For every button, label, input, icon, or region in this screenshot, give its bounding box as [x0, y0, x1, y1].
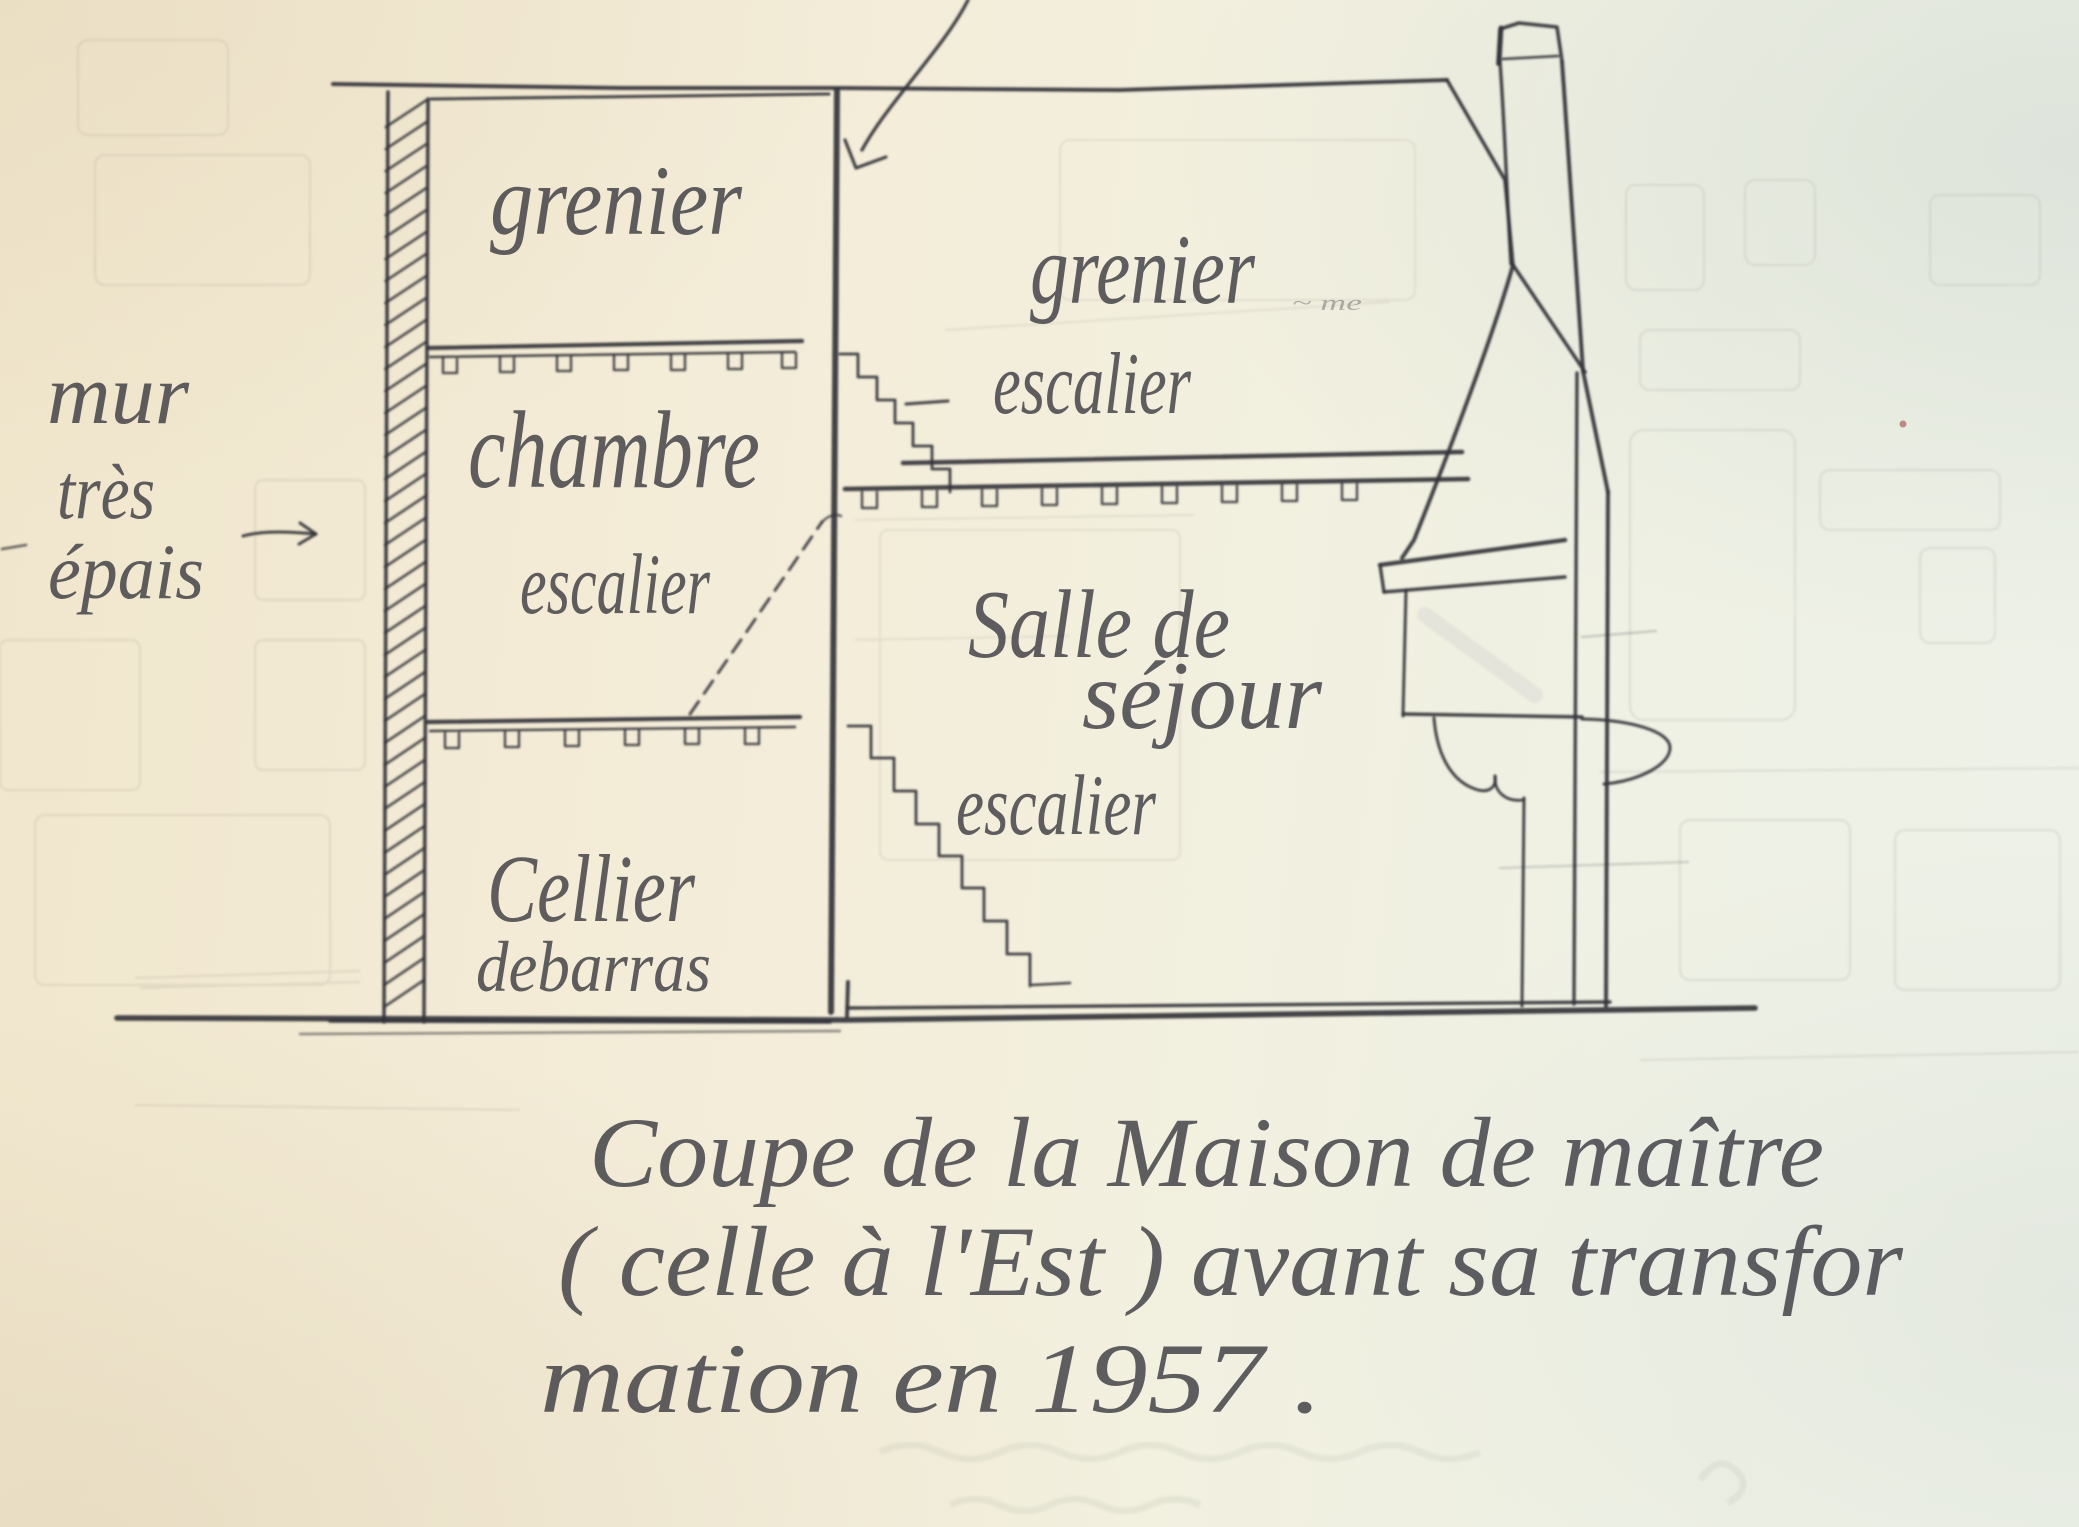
svg-text:escalier: escalier: [520, 536, 710, 632]
svg-text:mation en 1957 .: mation en 1957 .: [540, 1323, 1322, 1434]
svg-text:très: très: [57, 448, 155, 535]
svg-text:épais: épais: [48, 528, 204, 615]
svg-text:chambre: chambre: [468, 389, 760, 511]
svg-text:séjour: séjour: [1082, 642, 1323, 750]
svg-text:mur: mur: [47, 346, 190, 442]
svg-text:debarras: debarras: [476, 927, 711, 1007]
svg-text:Coupe de la Maison de maître: Coupe de la Maison de maître: [589, 1097, 1824, 1208]
svg-text:grenier: grenier: [490, 145, 743, 256]
svg-text:escalier: escalier: [956, 757, 1156, 853]
svg-text:grenier: grenier: [1030, 214, 1256, 325]
svg-text:Cellier: Cellier: [487, 835, 695, 942]
svg-text:( celle à l'Est ) avant sa tr: ( celle à l'Est ) avant sa transfor: [558, 1206, 1904, 1317]
svg-text:escalier: escalier: [993, 336, 1192, 433]
svg-text:~ me: ~ me: [1292, 290, 1362, 315]
